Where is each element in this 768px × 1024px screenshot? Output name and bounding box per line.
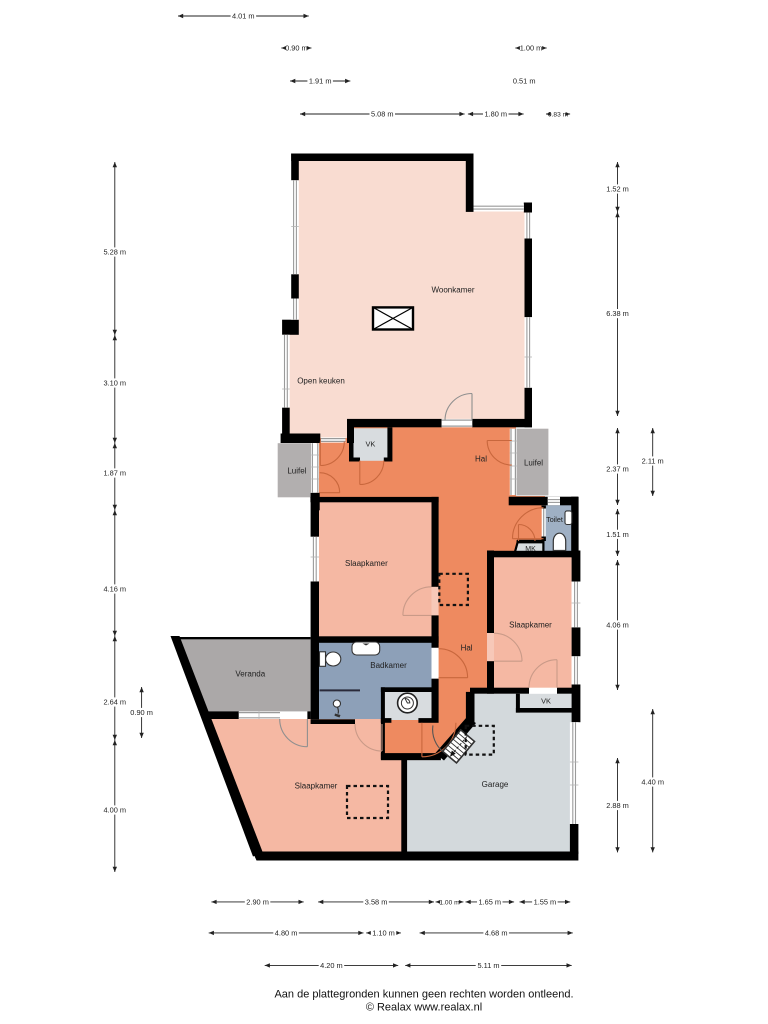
svg-text:4.80 m: 4.80 m (275, 929, 298, 938)
svg-text:4.40 m: 4.40 m (641, 778, 664, 787)
svg-text:Woonkamer: Woonkamer (432, 286, 475, 295)
svg-text:4.20 m: 4.20 m (320, 961, 343, 970)
svg-text:1.80 m: 1.80 m (484, 110, 507, 119)
svg-text:MK: MK (525, 546, 536, 553)
svg-text:Hal: Hal (461, 644, 473, 653)
svg-text:2.88 m: 2.88 m (606, 801, 629, 810)
svg-text:1.10 m: 1.10 m (372, 929, 395, 938)
svg-text:6.38 m: 6.38 m (606, 309, 629, 318)
svg-text:1.91 m: 1.91 m (309, 77, 332, 86)
svg-text:Veranda: Veranda (235, 670, 265, 679)
svg-text:Luifel: Luifel (524, 459, 543, 468)
svg-text:VK: VK (365, 440, 375, 449)
svg-text:1.87 m: 1.87 m (103, 469, 126, 478)
svg-text:VK: VK (541, 696, 551, 705)
svg-text:1.51 m: 1.51 m (606, 530, 629, 539)
svg-text:Badkamer: Badkamer (370, 661, 407, 670)
svg-text:3.10 m: 3.10 m (103, 379, 126, 388)
svg-text:1.52 m: 1.52 m (606, 185, 629, 194)
svg-text:1.55 m: 1.55 m (534, 898, 557, 907)
svg-text:2.37 m: 2.37 m (606, 465, 629, 474)
svg-text:5.11 m: 5.11 m (477, 961, 499, 970)
svg-text:4.16 m: 4.16 m (103, 585, 126, 594)
svg-text:1.00 m: 1.00 m (439, 900, 460, 907)
svg-text:2.11 m: 2.11 m (642, 457, 664, 466)
svg-text:4.00 m: 4.00 m (103, 806, 126, 815)
svg-text:Hal: Hal (475, 454, 487, 463)
svg-text:Luifel: Luifel (287, 467, 306, 476)
svg-text:3.58 m: 3.58 m (365, 898, 388, 907)
svg-text:4.68 m: 4.68 m (485, 929, 508, 938)
svg-text:Slaapkamer: Slaapkamer (509, 621, 552, 630)
svg-text:1.65 m: 1.65 m (478, 898, 501, 907)
svg-text:Slaapkamer: Slaapkamer (295, 782, 338, 791)
svg-text:Aan de plattegronden kunnen ge: Aan de plattegronden kunnen geen rechten… (274, 989, 573, 1001)
svg-text:Garage: Garage (482, 780, 509, 789)
svg-text:5.28 m: 5.28 m (103, 248, 126, 257)
svg-text:Open keuken: Open keuken (297, 377, 345, 386)
svg-text:2.64 m: 2.64 m (103, 698, 126, 707)
svg-text:0.90 m: 0.90 m (285, 44, 308, 53)
svg-text:4.06 m: 4.06 m (606, 621, 629, 630)
svg-text:1.00 m: 1.00 m (520, 44, 543, 53)
svg-text:0.90 m: 0.90 m (130, 708, 153, 717)
svg-text:© Realax www.realax.nl: © Realax www.realax.nl (366, 1002, 482, 1014)
svg-text:5.08 m: 5.08 m (371, 110, 394, 119)
svg-text:0.51 m: 0.51 m (513, 77, 536, 86)
svg-text:Toilet: Toilet (546, 515, 563, 524)
svg-text:Slaapkamer: Slaapkamer (345, 559, 388, 568)
svg-text:4.01 m: 4.01 m (232, 12, 255, 21)
svg-text:0.83 m: 0.83 m (548, 112, 569, 119)
svg-text:2.90 m: 2.90 m (246, 898, 269, 907)
